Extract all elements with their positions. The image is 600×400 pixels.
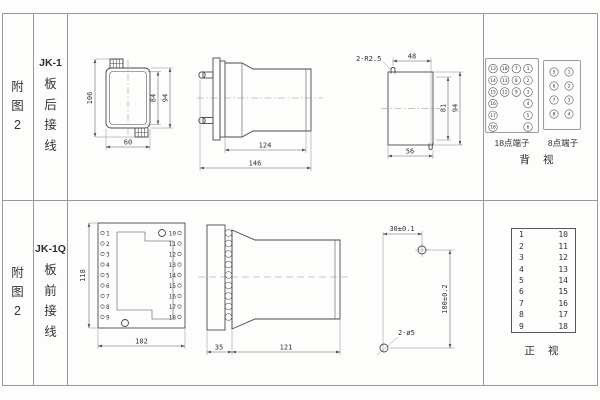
dim-label: 146 xyxy=(249,160,262,168)
svg-text:16: 16 xyxy=(169,293,177,300)
rear-view-caption: 背 视 xyxy=(483,152,595,167)
svg-text:1: 1 xyxy=(106,230,110,237)
svg-text:15: 15 xyxy=(169,283,177,290)
svg-text:8: 8 xyxy=(106,304,110,311)
svg-text:3: 3 xyxy=(527,90,530,96)
svg-text:6: 6 xyxy=(553,84,556,90)
svg-text:12: 12 xyxy=(169,251,177,258)
svg-text:2: 2 xyxy=(527,78,530,84)
terminal-circles: 5 1 6 2 7 3 8 4 xyxy=(550,68,573,118)
svg-text:7: 7 xyxy=(515,66,518,72)
cutout-radius-note: 2-R2.5 xyxy=(356,55,381,63)
svg-text:13: 13 xyxy=(490,66,496,72)
svg-text:14: 14 xyxy=(490,78,496,84)
jk1-panel-cutout: 2-R2.5 48 81 94 56 xyxy=(352,28,480,178)
hole-note: 2-ø5 xyxy=(398,329,415,337)
dim-label: 56 xyxy=(406,148,414,156)
jk1q-drill-pattern: 30±0.1 100±0.2 2-ø5 xyxy=(352,218,464,364)
appendix-label-text: 附图2 xyxy=(10,78,25,135)
table-row: 413 xyxy=(512,265,575,274)
grid-line xyxy=(597,13,598,385)
terminal-screws xyxy=(225,230,232,321)
wiring-type-text: 板后接线 xyxy=(43,74,58,156)
grid-line xyxy=(2,385,598,386)
jk1-front-view: 106 84 94 60 xyxy=(85,36,195,168)
svg-text:9: 9 xyxy=(106,314,110,321)
svg-text:2: 2 xyxy=(106,241,110,248)
table-row: 918 xyxy=(512,322,575,331)
table-row: 211 xyxy=(512,242,575,251)
jk1q-front-view: 1 2 3 4 5 6 7 8 9 10 11 12 13 14 15 16 1… xyxy=(72,216,198,354)
drawing-sheet: 附图2 JK-1 板后接线 附图2 JK-1Q 板前接线 106 84 94 6… xyxy=(0,0,600,400)
svg-text:7: 7 xyxy=(553,98,556,104)
mounting-hole-bottom xyxy=(380,344,388,352)
model-label-top: JK-1 板后接线 xyxy=(34,13,67,200)
terminal-mapping-table: 110 211 312 413 514 615 716 817 918 xyxy=(511,228,576,333)
svg-text:5: 5 xyxy=(553,70,556,76)
svg-text:7: 7 xyxy=(106,293,110,300)
svg-text:18: 18 xyxy=(169,314,177,321)
svg-text:9: 9 xyxy=(515,90,518,96)
svg-text:4: 4 xyxy=(527,101,530,107)
dim-label: 94 xyxy=(162,94,170,102)
dim-label: 60 xyxy=(124,139,132,147)
jk1-side-view: 124 146 xyxy=(195,38,330,173)
dim-label: 121 xyxy=(280,344,293,352)
svg-text:16: 16 xyxy=(490,101,496,107)
svg-text:11: 11 xyxy=(169,241,177,248)
svg-text:4: 4 xyxy=(568,112,571,118)
dim-label: 100±0.2 xyxy=(441,284,449,314)
table-row: 716 xyxy=(512,299,575,308)
dim-label: 35 xyxy=(215,344,223,352)
grid-line xyxy=(67,13,68,385)
wiring-type-text: 板前接线 xyxy=(43,260,58,342)
svg-text:3: 3 xyxy=(568,98,571,104)
table-row: 615 xyxy=(512,287,575,296)
appendix-label-top: 附图2 xyxy=(2,13,33,200)
model-name: JK-1 xyxy=(39,57,62,69)
dim-label: 102 xyxy=(135,338,148,346)
terminal-18pt-caption: 18点端子 xyxy=(483,137,541,149)
svg-text:3: 3 xyxy=(106,251,110,258)
svg-text:14: 14 xyxy=(169,272,177,279)
dim-label: 94 xyxy=(452,104,460,112)
left-terminal-labels: 1 2 3 4 5 6 7 8 9 xyxy=(101,230,110,321)
svg-text:17: 17 xyxy=(169,304,177,311)
dim-label: 118 xyxy=(79,269,87,282)
svg-text:6: 6 xyxy=(106,283,110,290)
svg-text:6: 6 xyxy=(527,125,530,131)
table-row: 312 xyxy=(512,253,575,262)
dim-label: 48 xyxy=(408,53,416,61)
svg-text:17: 17 xyxy=(490,113,496,119)
appendix-label-text: 附图2 xyxy=(10,264,25,321)
model-label-bottom: JK-1Q 板前接线 xyxy=(34,200,67,385)
svg-text:2: 2 xyxy=(568,84,571,90)
svg-text:15: 15 xyxy=(490,90,496,96)
svg-text:18: 18 xyxy=(490,125,496,131)
dim-label: 84 xyxy=(150,94,158,102)
terminal-18pt-diagram: 13 10 7 1 14 11 8 2 15 12 9 3 16 4 17 5 … xyxy=(485,58,539,133)
svg-text:10: 10 xyxy=(169,230,177,237)
terminal-8pt-caption: 8点端子 xyxy=(540,137,586,149)
svg-text:4: 4 xyxy=(106,262,110,269)
terminal-circles: 13 10 7 1 14 11 8 2 15 12 9 3 16 4 17 5 … xyxy=(489,64,533,131)
svg-text:5: 5 xyxy=(106,272,110,279)
table-row: 514 xyxy=(512,276,575,285)
jk1q-side-view: 35 121 xyxy=(196,216,356,364)
svg-text:11: 11 xyxy=(502,78,508,84)
front-view-caption: 正 视 xyxy=(505,343,583,358)
dim-label: 81 xyxy=(440,104,448,112)
grid-line xyxy=(483,13,484,385)
right-terminal-labels: 10 11 12 13 14 15 16 17 18 xyxy=(169,230,181,321)
svg-text:8: 8 xyxy=(553,112,556,118)
appendix-label-bottom: 附图2 xyxy=(2,200,33,385)
svg-text:12: 12 xyxy=(502,90,508,96)
svg-text:1: 1 xyxy=(527,66,530,72)
svg-text:8: 8 xyxy=(515,78,518,84)
svg-text:13: 13 xyxy=(169,262,177,269)
model-name: JK-1Q xyxy=(35,243,66,255)
dim-label: 30±0.1 xyxy=(389,225,414,233)
svg-text:1: 1 xyxy=(568,70,571,76)
terminal-8pt-diagram: 5 1 6 2 7 3 8 4 xyxy=(543,60,581,130)
table-row: 817 xyxy=(512,310,575,319)
table-row: 110 xyxy=(512,230,575,239)
svg-text:5: 5 xyxy=(527,113,530,119)
dim-label: 124 xyxy=(259,142,272,150)
dim-label: 106 xyxy=(86,92,94,105)
svg-text:10: 10 xyxy=(502,66,508,72)
grid-line xyxy=(2,13,598,14)
grid-line xyxy=(2,200,598,201)
